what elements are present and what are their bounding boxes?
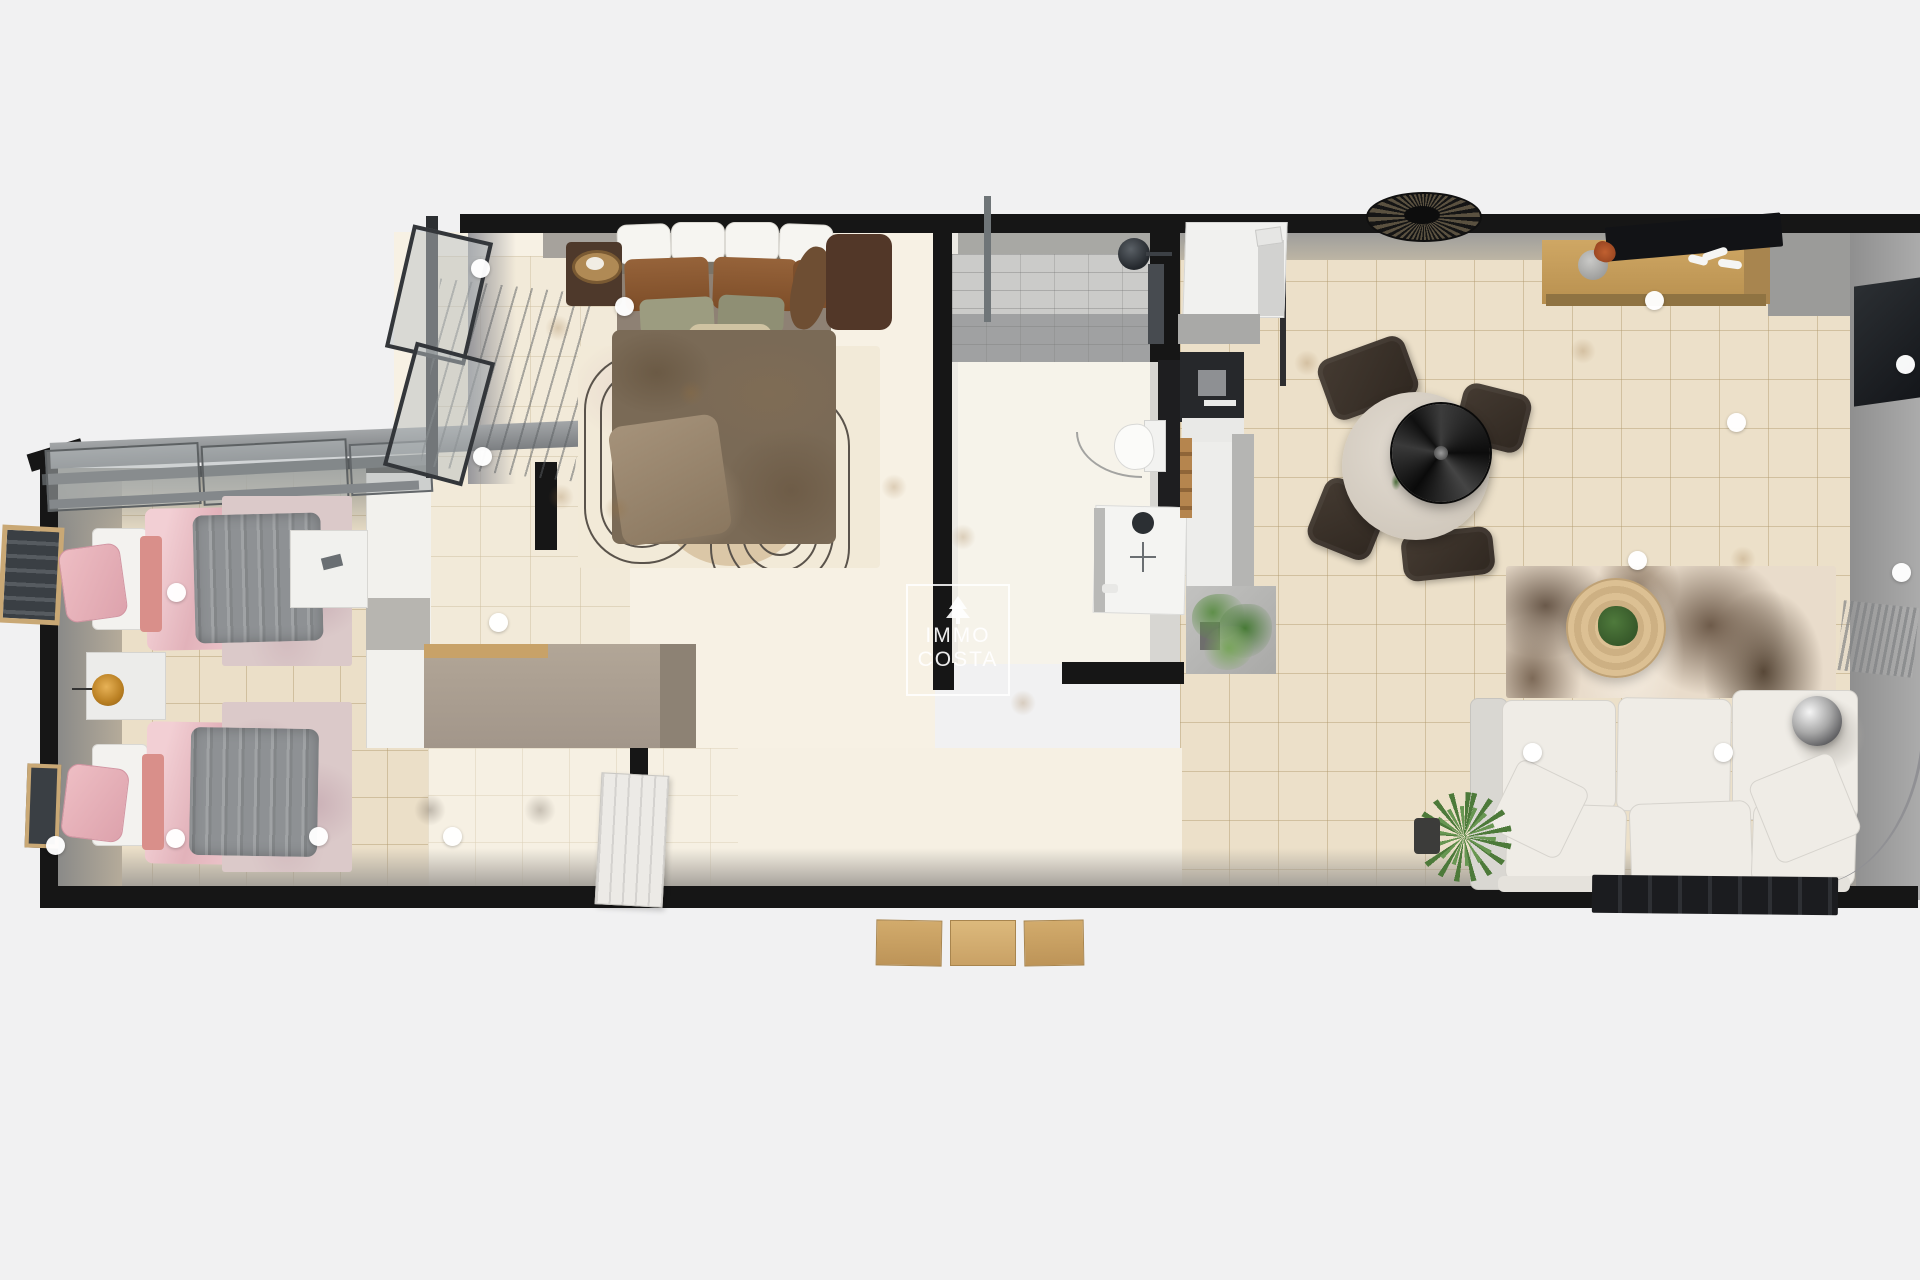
hotspot-dot[interactable] xyxy=(1896,355,1915,374)
faucet-handle xyxy=(1130,556,1156,558)
wall-kids-master-shade xyxy=(366,598,430,650)
vanity-side-panel xyxy=(1094,508,1105,612)
shower-drain-band xyxy=(952,314,1150,362)
pendant-lamp-center xyxy=(1434,446,1448,460)
pine-tree-icon xyxy=(946,603,970,618)
hotspot-dot[interactable] xyxy=(1727,413,1746,432)
dark-slatted-bench xyxy=(1592,875,1838,916)
master-bed-white-pillow xyxy=(725,222,779,262)
living-plant-pot xyxy=(1414,818,1440,854)
master-nightstand-right xyxy=(826,234,892,330)
kitchen-counter-shadow xyxy=(1178,314,1260,344)
watermark-badge: IMMO COSTA xyxy=(906,584,1010,696)
kids-bed1-pillow xyxy=(57,542,129,624)
shower-column xyxy=(1148,264,1164,344)
hotspot-dot[interactable] xyxy=(1645,291,1664,310)
tray-dish xyxy=(586,257,604,270)
shower-glass-panel xyxy=(984,196,991,322)
wall-bathroom-bottom xyxy=(1062,662,1184,684)
soap-dish xyxy=(1102,584,1118,593)
fridge-handle xyxy=(1255,226,1283,246)
floor-shadow-spot xyxy=(678,380,704,406)
living-plant-leaves xyxy=(1432,806,1496,866)
kids-bed1-bolster xyxy=(140,536,162,632)
hotspot-dot[interactable] xyxy=(1523,743,1542,762)
kitchen-counter-edge xyxy=(1232,434,1254,600)
rattan-lamp-center xyxy=(1404,206,1440,224)
hotspot-dot[interactable] xyxy=(1714,743,1733,762)
floor-shadow-spot xyxy=(545,315,571,341)
hotspot-dot[interactable] xyxy=(443,827,462,846)
entrance-mat xyxy=(950,920,1016,966)
coffee-table-plant xyxy=(1598,606,1638,646)
basin-faucet xyxy=(1132,512,1154,534)
master-bed-throw-fold xyxy=(607,413,733,547)
watermark-line1: IMMO xyxy=(925,624,990,648)
step-ladder xyxy=(1180,438,1192,518)
hotspot-dot[interactable] xyxy=(473,447,492,466)
oven-window xyxy=(1198,370,1226,396)
kids-bed2-pillow xyxy=(60,762,131,843)
floor-shadow-spot xyxy=(1570,338,1596,364)
fridge-side-panel xyxy=(1258,240,1284,316)
floorplan-canvas: IMMO COSTA xyxy=(0,0,1920,1280)
sheer-curtain xyxy=(1837,600,1920,678)
floor-shadow-spot xyxy=(1010,690,1036,716)
floor-shadow-spot xyxy=(414,794,446,826)
hotspot-dot[interactable] xyxy=(1628,551,1647,570)
shower-arm xyxy=(1146,252,1172,256)
master-dresser-side xyxy=(660,644,696,748)
living-area-rug xyxy=(1506,566,1836,698)
floor-shadow-spot xyxy=(548,484,574,510)
kids-bed2-duvet xyxy=(189,727,319,857)
hotspot-dot[interactable] xyxy=(166,829,185,848)
entrance-mat xyxy=(1024,919,1085,966)
oven-handle xyxy=(1204,400,1236,406)
dark-wall-cabinet xyxy=(1854,277,1920,406)
kids-table-lamp xyxy=(92,674,124,706)
master-dresser xyxy=(424,644,696,748)
hotspot-dot[interactable] xyxy=(489,613,508,632)
entrance-mat xyxy=(876,919,943,966)
hotspot-dot[interactable] xyxy=(1892,563,1911,582)
hotspot-dot[interactable] xyxy=(309,827,328,846)
hotspot-dot[interactable] xyxy=(167,583,186,602)
floor-shadow-spot xyxy=(950,524,976,550)
kids-bed2-bolster xyxy=(142,754,164,850)
hotspot-dot[interactable] xyxy=(615,297,634,316)
floor-shadow-spot xyxy=(881,474,907,500)
floor-shadow-spot xyxy=(524,794,556,826)
floor-shadow-spot xyxy=(1730,546,1756,572)
floor-shadow-spot xyxy=(604,496,630,522)
wall-frame-large xyxy=(0,524,65,625)
hotspot-dot[interactable] xyxy=(471,259,490,278)
master-panel-door xyxy=(595,772,670,907)
master-dresser-wood-top xyxy=(424,644,548,658)
kids-desk xyxy=(290,530,368,608)
watermark-line2: COSTA xyxy=(918,648,999,672)
chrome-globe-floor-lamp xyxy=(1792,696,1842,746)
hotspot-dot[interactable] xyxy=(46,836,65,855)
floor-shadow-spot xyxy=(1294,350,1320,376)
